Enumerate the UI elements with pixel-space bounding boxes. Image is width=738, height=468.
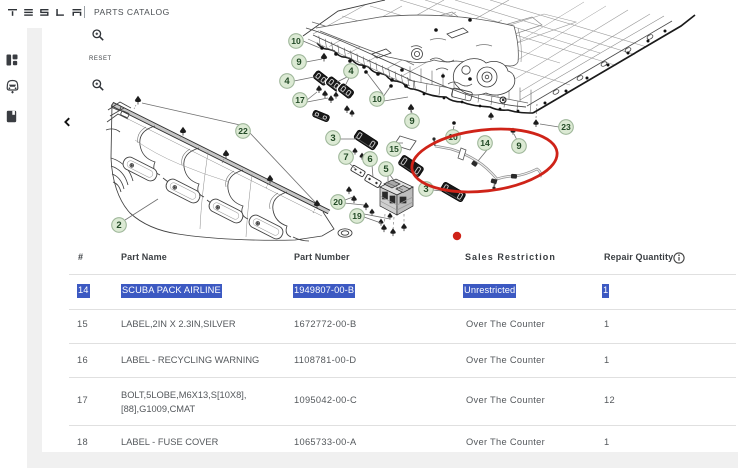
svg-text:9: 9 (516, 141, 521, 152)
svg-text:3: 3 (330, 133, 335, 144)
svg-text:19: 19 (352, 211, 362, 221)
svg-text:6: 6 (367, 154, 372, 165)
svg-text:22: 22 (238, 126, 248, 136)
svg-text:10: 10 (291, 36, 301, 46)
svg-text:4: 4 (284, 76, 290, 87)
svg-text:9: 9 (409, 116, 414, 127)
svg-text:15: 15 (389, 144, 399, 154)
svg-text:17: 17 (295, 95, 305, 105)
svg-text:7: 7 (343, 152, 348, 163)
svg-text:10: 10 (372, 94, 382, 104)
svg-text:23: 23 (561, 122, 571, 132)
svg-text:20: 20 (333, 197, 343, 207)
svg-text:14: 14 (480, 138, 490, 148)
svg-text:2: 2 (116, 220, 121, 231)
svg-text:4: 4 (348, 66, 354, 77)
svg-text:5: 5 (383, 164, 389, 175)
svg-text:9: 9 (296, 57, 301, 68)
